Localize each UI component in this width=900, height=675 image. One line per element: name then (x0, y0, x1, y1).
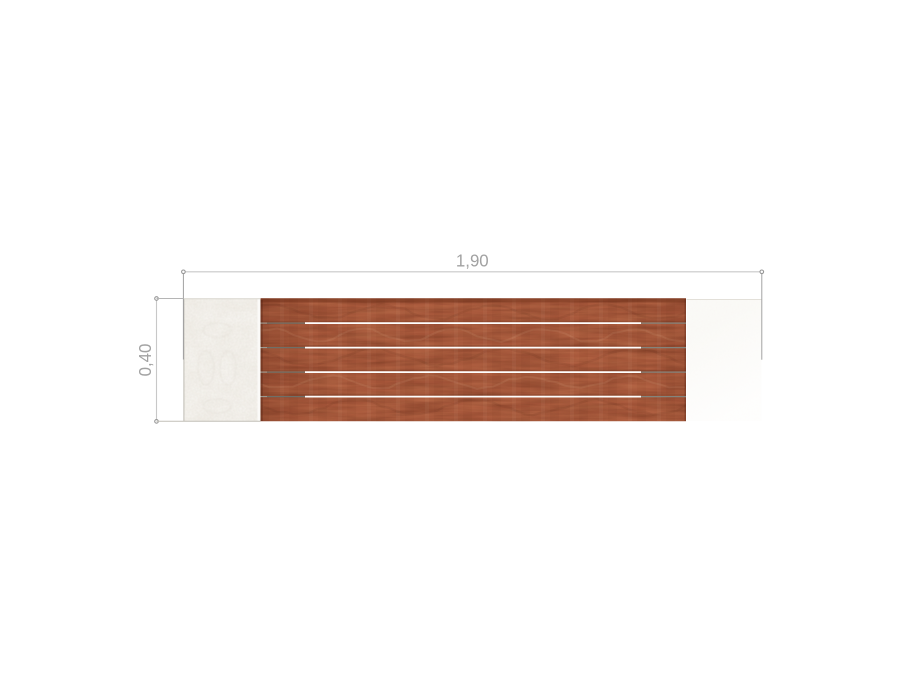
svg-text:0,40: 0,40 (135, 343, 155, 376)
svg-text:1,90: 1,90 (456, 251, 489, 271)
